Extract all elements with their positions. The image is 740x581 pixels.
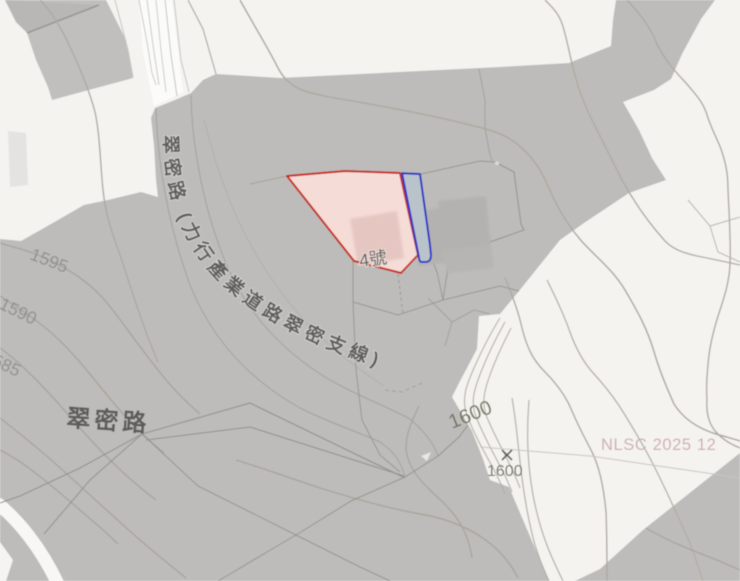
svg-text:翠密路: 翠密路 <box>66 404 152 438</box>
svg-text:1600: 1600 <box>487 463 523 480</box>
svg-text:NLSC 2025 12: NLSC 2025 12 <box>601 436 716 454</box>
svg-text:4號: 4號 <box>358 247 389 271</box>
